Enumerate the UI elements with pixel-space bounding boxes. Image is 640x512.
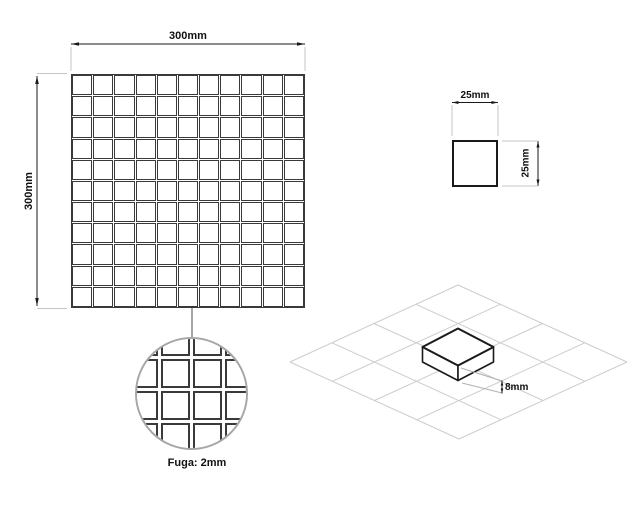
- mosaic-tile-cell: [241, 181, 261, 201]
- mosaic-tile-cell: [263, 181, 283, 201]
- mosaic-tile-cell: [114, 287, 134, 307]
- sheet-height-label: 300mm: [23, 172, 35, 210]
- arrowhead-up-icon: [537, 141, 540, 148]
- tile-height-label: 25mm: [521, 149, 532, 178]
- mosaic-tile-cell: [220, 117, 240, 137]
- mosaic-tile-cell: [93, 244, 113, 264]
- mosaic-tile-cell: [72, 139, 92, 159]
- mosaic-tile-cell: [157, 202, 177, 222]
- mosaic-tile-cell: [114, 117, 134, 137]
- mosaic-tile-cell: [284, 75, 304, 95]
- mosaic-tile-cell: [72, 160, 92, 180]
- mosaic-tile-cell: [284, 223, 304, 243]
- detail-tile-cell: [225, 337, 248, 356]
- mosaic-tile-cell: [136, 160, 156, 180]
- mosaic-tile-cell: [284, 96, 304, 116]
- mosaic-tile-cell: [178, 117, 198, 137]
- detail-tile-cell: [135, 391, 158, 420]
- single-tile-square: [452, 140, 498, 187]
- mosaic-tile-cell: [136, 139, 156, 159]
- tile-thickness-label: 8mm: [505, 382, 528, 393]
- mosaic-tile-cell: [284, 117, 304, 137]
- mosaic-tile-cell: [199, 117, 219, 137]
- mosaic-tile-cell: [114, 202, 134, 222]
- mosaic-tile-cell: [241, 287, 261, 307]
- mosaic-tile-cell: [263, 117, 283, 137]
- mosaic-tile-cell: [72, 96, 92, 116]
- extension-line: [462, 383, 502, 393]
- mosaic-tile-cell: [241, 266, 261, 286]
- mosaic-tile-cell: [93, 181, 113, 201]
- arrowhead-right-icon: [492, 101, 499, 104]
- mosaic-tile-cell: [284, 287, 304, 307]
- mosaic-tile-cell: [136, 266, 156, 286]
- mosaic-tile-cell: [199, 287, 219, 307]
- mosaic-tile-cell: [136, 181, 156, 201]
- mosaic-tile-cell: [199, 181, 219, 201]
- arrowhead-down-icon: [537, 180, 540, 187]
- mosaic-tile-cell: [72, 117, 92, 137]
- arrowhead-down-icon: [35, 298, 39, 306]
- mosaic-tile-cell: [93, 139, 113, 159]
- mosaic-tile-cell: [220, 181, 240, 201]
- mosaic-tile-cell: [241, 202, 261, 222]
- mosaic-tile-cell: [199, 244, 219, 264]
- tile-width-label: 25mm: [461, 90, 490, 101]
- mosaic-tile-cell: [220, 75, 240, 95]
- mosaic-tile-cell: [136, 202, 156, 222]
- mosaic-tile-cell: [72, 202, 92, 222]
- sheet-height-dimension: [35, 74, 67, 309]
- mosaic-tile-cell: [220, 266, 240, 286]
- mosaic-tile-cell: [72, 75, 92, 95]
- detail-tile-cell: [193, 359, 222, 388]
- mosaic-tile-cell: [136, 117, 156, 137]
- detail-tile-cell: [193, 391, 222, 420]
- detail-tile-cell: [161, 359, 190, 388]
- mosaic-tile-cell: [93, 266, 113, 286]
- mosaic-tile-cell: [157, 96, 177, 116]
- mosaic-tile-cell: [93, 117, 113, 137]
- mosaic-tile-cell: [136, 75, 156, 95]
- tile-width-dimension: [452, 101, 498, 136]
- mosaic-tile-cell: [241, 139, 261, 159]
- mosaic-tile-cell: [114, 181, 134, 201]
- sheet-width-dimension: [71, 42, 305, 71]
- mosaic-tile-cell: [220, 244, 240, 264]
- mosaic-tile-cell: [136, 96, 156, 116]
- sheet-width-label: 300mm: [169, 30, 207, 42]
- mosaic-tile-cell: [263, 160, 283, 180]
- mosaic-tile-cell: [157, 117, 177, 137]
- mosaic-tile-cell: [263, 244, 283, 264]
- mosaic-tile-cell: [114, 266, 134, 286]
- mosaic-tile-cell: [284, 266, 304, 286]
- mosaic-tile-cell: [284, 181, 304, 201]
- mosaic-tile-cell: [114, 139, 134, 159]
- mosaic-tile-cell: [220, 139, 240, 159]
- mosaic-tile-cell: [157, 223, 177, 243]
- arrowhead-left-icon: [452, 101, 459, 104]
- mosaic-tile-cell: [284, 244, 304, 264]
- mosaic-tile-cell: [263, 266, 283, 286]
- mosaic-tile-cell: [199, 266, 219, 286]
- mosaic-tile-cell: [241, 75, 261, 95]
- mosaic-tile-cell: [178, 96, 198, 116]
- grout-caption: Fuga: 2mm: [168, 457, 227, 469]
- detail-tile-cell: [225, 359, 248, 388]
- mosaic-tile-cell: [199, 75, 219, 95]
- mosaic-tile-cell: [220, 160, 240, 180]
- arrowhead-left-icon: [71, 42, 79, 46]
- detail-tile-cell: [193, 423, 222, 450]
- detail-tile-cell: [135, 423, 158, 450]
- detail-tile-cell: [161, 391, 190, 420]
- mosaic-tile-cell: [241, 244, 261, 264]
- grout-detail-circle: [135, 337, 248, 450]
- mosaic-tile-cell: [199, 223, 219, 243]
- mosaic-tile-cell: [72, 223, 92, 243]
- mosaic-tile-cell: [136, 244, 156, 264]
- mosaic-tile-cell: [199, 160, 219, 180]
- mosaic-tile-cell: [114, 244, 134, 264]
- mosaic-tile-cell: [220, 223, 240, 243]
- mosaic-tile-cell: [241, 96, 261, 116]
- drawing-sheet: 300mm 300mm 25mm 25mm Fuga: 2mm 8mm: [0, 0, 640, 512]
- mosaic-tile-cell: [93, 96, 113, 116]
- mosaic-tile-cell: [136, 287, 156, 307]
- mosaic-tile-cell: [263, 139, 283, 159]
- mosaic-tile-cell: [93, 287, 113, 307]
- mosaic-tile-cell: [263, 223, 283, 243]
- mosaic-tile-cell: [157, 75, 177, 95]
- mosaic-tile-cell: [178, 244, 198, 264]
- mosaic-tile-cell: [284, 139, 304, 159]
- mosaic-tile-cell: [114, 75, 134, 95]
- mosaic-tile-cell: [220, 287, 240, 307]
- detail-tile-cell: [225, 391, 248, 420]
- mosaic-tile-cell: [157, 266, 177, 286]
- mosaic-tile-cell: [136, 223, 156, 243]
- mosaic-tile-cell: [178, 160, 198, 180]
- grout-detail-grid: [135, 337, 248, 450]
- mosaic-tile-cell: [93, 75, 113, 95]
- mosaic-tile-cell: [93, 160, 113, 180]
- mosaic-tile-cell: [114, 223, 134, 243]
- mosaic-sheet-grid: [71, 74, 305, 308]
- detail-tile-cell: [135, 359, 158, 388]
- mosaic-tile-cell: [93, 202, 113, 222]
- mosaic-tile-cell: [72, 181, 92, 201]
- mosaic-tile-cell: [178, 223, 198, 243]
- mosaic-tile-cell: [157, 181, 177, 201]
- mosaic-tile-cell: [157, 287, 177, 307]
- mosaic-tile-cell: [284, 160, 304, 180]
- mosaic-tile-cell: [241, 117, 261, 137]
- mosaic-tile-cell: [263, 202, 283, 222]
- mosaic-tile-cell: [157, 244, 177, 264]
- mosaic-tile-cell: [178, 181, 198, 201]
- detail-tile-cell: [193, 337, 222, 356]
- detail-tile-cell: [161, 337, 190, 356]
- detail-tile-cell: [135, 337, 158, 356]
- mosaic-tile-cell: [114, 96, 134, 116]
- mosaic-tile-cell: [178, 202, 198, 222]
- mosaic-tile-cell: [93, 223, 113, 243]
- mosaic-tile-cell: [72, 244, 92, 264]
- mosaic-tile-cell: [220, 202, 240, 222]
- mosaic-tile-cell: [72, 266, 92, 286]
- mosaic-tile-cell: [72, 287, 92, 307]
- mosaic-tile-cell: [241, 160, 261, 180]
- mosaic-tile-cell: [220, 96, 240, 116]
- detail-tile-cell: [161, 423, 190, 450]
- mosaic-tile-cell: [284, 202, 304, 222]
- mosaic-tile-cell: [178, 266, 198, 286]
- mosaic-tile-cell: [241, 223, 261, 243]
- mosaic-tile-cell: [263, 75, 283, 95]
- arrowhead-right-icon: [297, 42, 305, 46]
- mosaic-tile-cell: [157, 139, 177, 159]
- mosaic-tile-cell: [157, 160, 177, 180]
- mosaic-tile-cell: [178, 75, 198, 95]
- mosaic-tile-cell: [263, 96, 283, 116]
- mosaic-tile-cell: [178, 287, 198, 307]
- mosaic-tile-cell: [199, 202, 219, 222]
- mosaic-tile-cell: [263, 287, 283, 307]
- detail-tile-cell: [225, 423, 248, 450]
- arrowhead-up-icon: [35, 76, 39, 84]
- mosaic-tile-cell: [199, 96, 219, 116]
- mosaic-tile-cell: [114, 160, 134, 180]
- mosaic-tile-cell: [199, 139, 219, 159]
- mosaic-tile-cell: [178, 139, 198, 159]
